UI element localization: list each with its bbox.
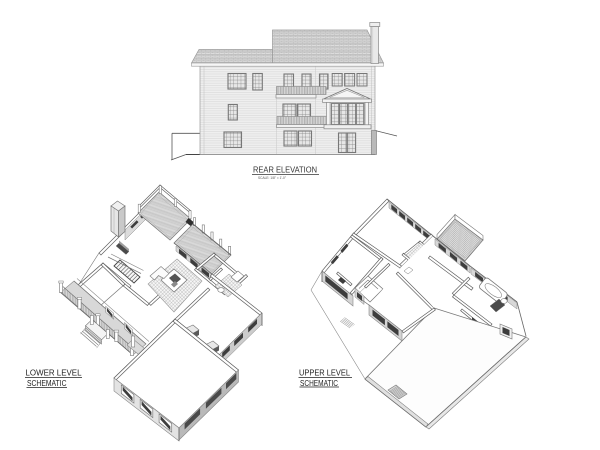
svg-text:UPPER LEVEL: UPPER LEVEL	[299, 368, 350, 378]
svg-text:LOWER LEVEL: LOWER LEVEL	[26, 368, 82, 378]
svg-text:SCALE: 1/8" = 1'-0": SCALE: 1/8" = 1'-0"	[258, 176, 287, 180]
svg-text:REAR ELEVATION: REAR ELEVATION	[253, 165, 317, 175]
svg-text:SCHEMATIC: SCHEMATIC	[300, 378, 338, 388]
svg-text:SCHEMATIC: SCHEMATIC	[27, 378, 67, 388]
